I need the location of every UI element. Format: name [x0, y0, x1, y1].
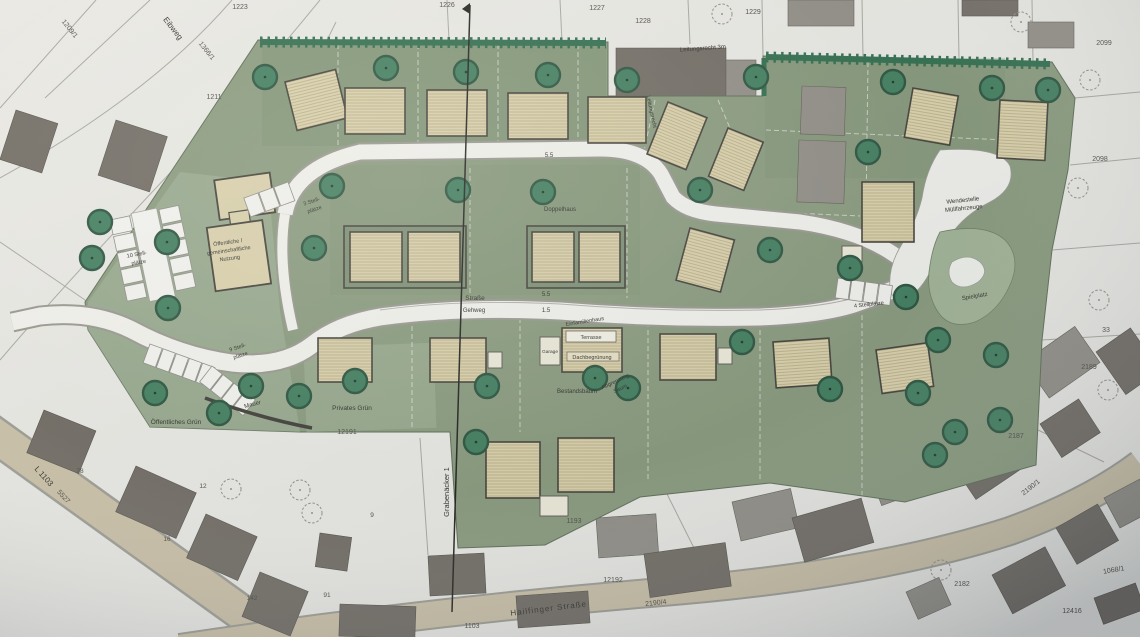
site-plan-canvas: Eibweg Hailfinger Straße L 1103 Grabenäc…: [0, 0, 1140, 637]
site-plan-photo: Eibweg Hailfinger Straße L 1103 Grabenäc…: [0, 0, 1140, 637]
photo-vignette: [0, 0, 1140, 637]
